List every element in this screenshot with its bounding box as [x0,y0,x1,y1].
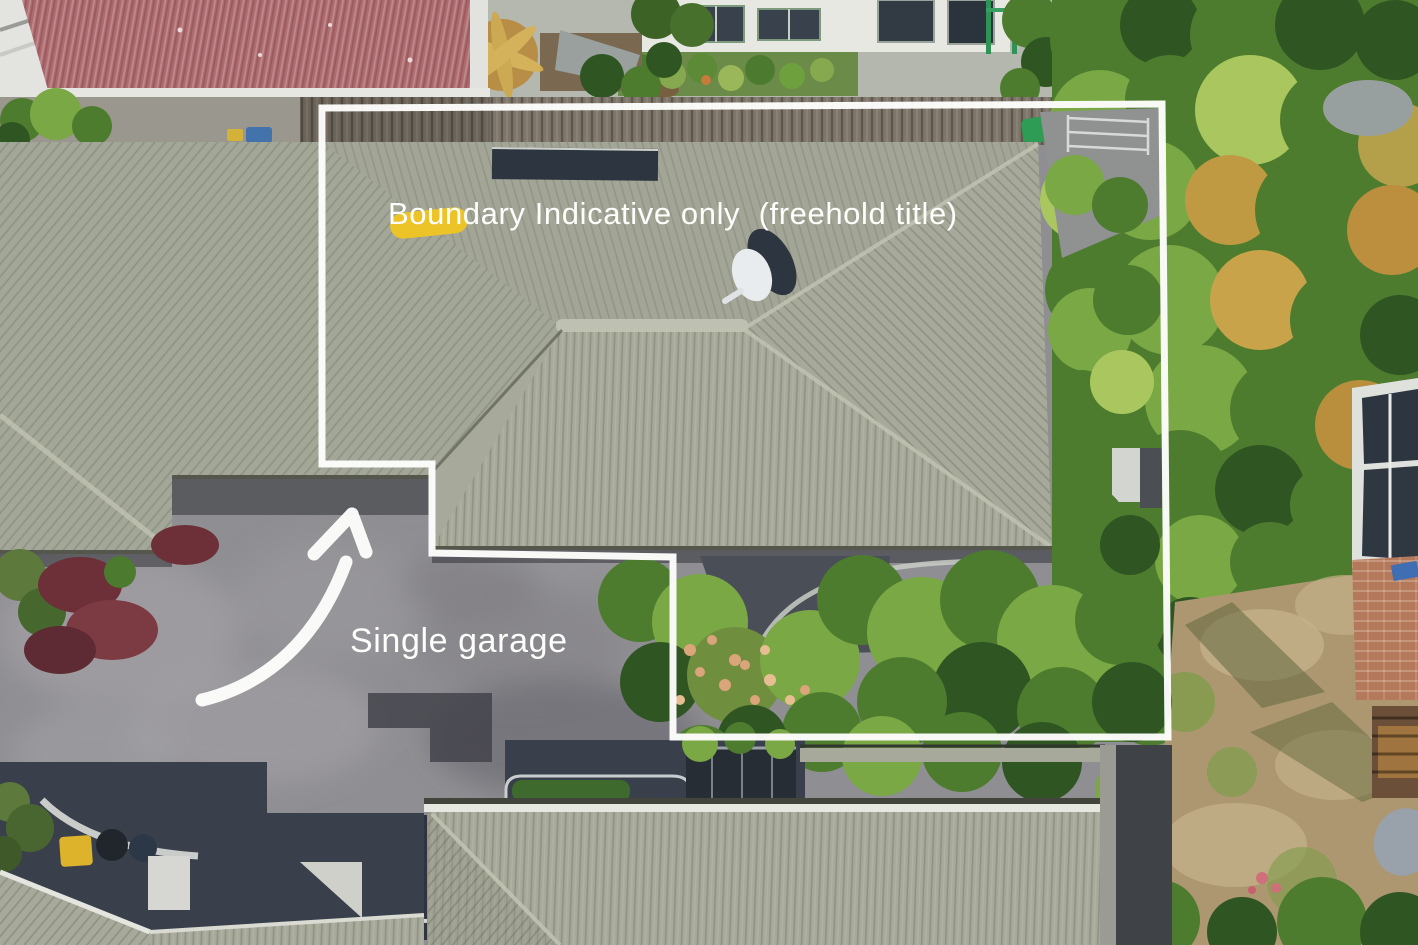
yellow-bin-top [227,129,243,141]
concrete-path [858,52,1010,96]
rear-roof-fascia [424,798,1108,804]
photo-scene [0,0,1418,945]
dark-bin [96,829,128,861]
boundary-label: Boundary Indicative only (freehold title… [388,196,958,232]
roof-skylight [492,147,658,181]
garage-label: Single garage [350,622,568,661]
aerial-photo: Boundary Indicative only (freehold title… [0,0,1418,945]
garage-eave-shadow [172,479,432,515]
neighbor-red-roof [22,0,490,97]
white-retaining-wall [1112,448,1140,502]
white-wall [148,856,190,910]
block-wall [1100,745,1116,945]
dark-walkway [1116,745,1172,945]
yellow-wheelie-bin [59,835,93,867]
gutter-fascia [46,88,490,97]
vines [682,726,718,762]
pink-flowers [1256,872,1268,884]
rear-roof-ridge-cap [424,804,1108,812]
ridge-cap [556,319,748,332]
rocks [1323,80,1413,136]
blue-bin [246,127,272,143]
